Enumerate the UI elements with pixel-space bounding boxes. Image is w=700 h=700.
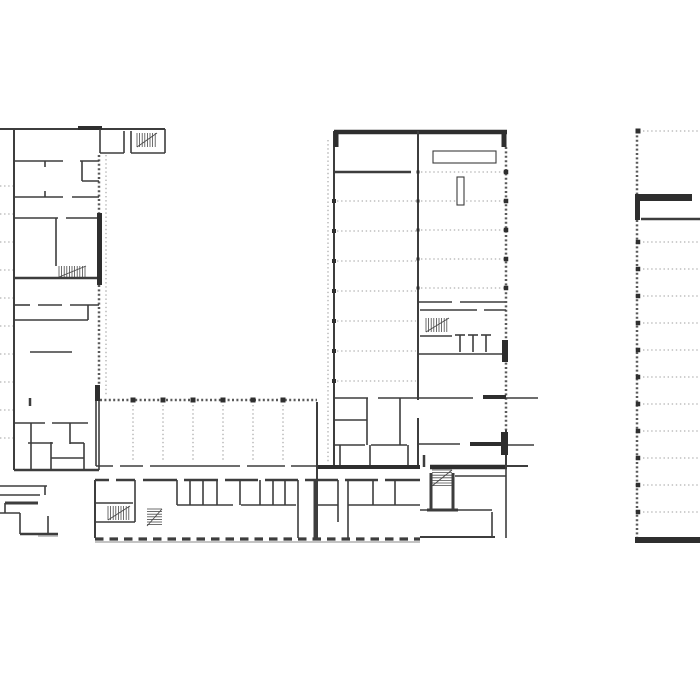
structural-grid-layer xyxy=(0,131,700,512)
skylight-outline xyxy=(433,151,496,163)
column-marker xyxy=(636,321,641,326)
column-marker xyxy=(332,349,336,353)
floor-plan-drawing xyxy=(0,0,700,700)
thick-wall xyxy=(635,194,640,220)
column-marker xyxy=(504,286,509,291)
column-marker xyxy=(332,289,336,293)
skylight-outline-layer xyxy=(433,151,496,205)
column-marker xyxy=(417,229,420,232)
column-marker xyxy=(636,348,641,353)
column-marker xyxy=(251,398,256,403)
column-marker xyxy=(221,398,226,403)
stair-run-line xyxy=(108,506,130,520)
column-marker xyxy=(636,510,641,515)
thick-wall xyxy=(635,194,692,201)
stair-run-line xyxy=(59,266,86,277)
column-marker xyxy=(636,294,641,299)
column-marker xyxy=(417,200,420,203)
stair-glyph xyxy=(147,509,162,526)
column-marker xyxy=(332,259,336,263)
column-marker xyxy=(636,402,641,407)
column-marker-layer xyxy=(131,129,641,515)
stair-glyph xyxy=(108,506,130,520)
column-marker xyxy=(281,398,286,403)
stair-glyph xyxy=(59,266,86,277)
window-wall-layer xyxy=(99,131,637,537)
column-marker xyxy=(332,229,336,233)
column-marker xyxy=(636,483,641,488)
column-marker xyxy=(636,429,641,434)
column-marker xyxy=(417,171,420,174)
column-marker xyxy=(332,319,336,323)
column-marker xyxy=(636,129,641,134)
column-marker xyxy=(636,456,641,461)
column-marker xyxy=(636,267,641,272)
column-marker xyxy=(636,375,641,380)
skylight-outline xyxy=(457,177,464,205)
column-marker xyxy=(504,199,509,204)
column-marker xyxy=(504,228,509,233)
thick-wall-layer xyxy=(95,194,700,543)
column-marker xyxy=(332,379,336,383)
walls-layer xyxy=(0,128,700,538)
stair-glyph xyxy=(137,133,157,147)
stair-glyph xyxy=(426,318,449,332)
column-marker xyxy=(636,240,641,245)
column-marker xyxy=(131,398,136,403)
floor-plan-canvas xyxy=(0,0,700,700)
thick-wall xyxy=(501,432,508,455)
thick-wall xyxy=(95,385,100,401)
column-marker xyxy=(417,258,420,261)
stair-glyph xyxy=(432,470,452,486)
column-marker xyxy=(504,170,509,175)
thick-wall xyxy=(502,340,508,362)
shade-fill xyxy=(95,541,420,543)
thick-wall xyxy=(97,213,102,285)
column-marker xyxy=(417,287,420,290)
stair-run-line xyxy=(426,318,449,332)
column-marker xyxy=(191,398,196,403)
column-marker xyxy=(332,199,336,203)
column-marker xyxy=(161,398,166,403)
thick-wall xyxy=(635,537,700,543)
column-marker xyxy=(504,257,509,262)
